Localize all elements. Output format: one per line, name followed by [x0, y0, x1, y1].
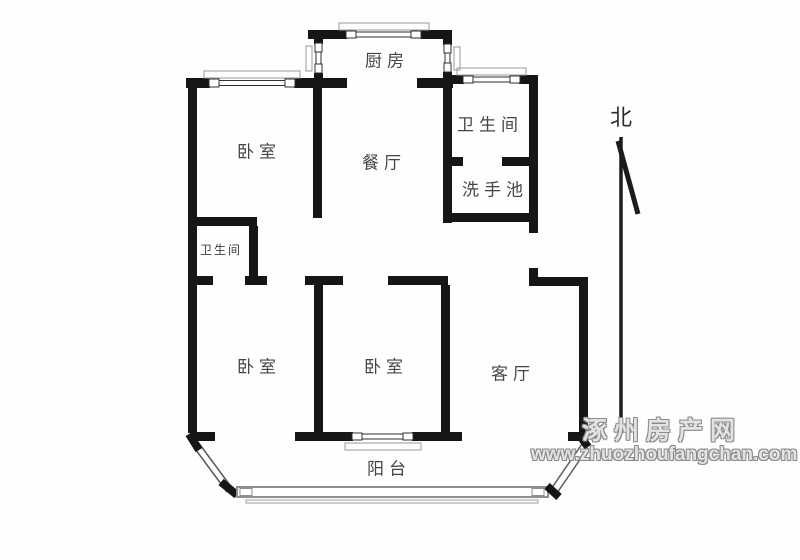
room-label-bedroom-top-left: 卧室 [237, 144, 281, 161]
watermark-site-url: www.zhuozhoufangchan.com [531, 445, 797, 464]
room-label-living-room: 客厅 [491, 366, 535, 383]
compass-north-label: 北 [610, 107, 632, 129]
window-bedroom-bottom [345, 432, 421, 450]
room-label-balcony: 阳台 [367, 461, 411, 478]
room-label-dining-room: 餐厅 [362, 155, 406, 172]
window-kitchen-left [306, 43, 323, 73]
room-label-bedroom-bottom-middle: 卧室 [364, 359, 408, 376]
window-bathroom-top [457, 68, 526, 84]
room-label-bedroom-bottom-left: 卧室 [237, 359, 281, 376]
north-arrow-icon [618, 137, 638, 420]
window-bedroom-top [204, 71, 300, 88]
room-label-bathroom: 卫生间 [457, 117, 523, 134]
room-label-bathroom-small: 卫生间 [200, 244, 242, 256]
window-kitchen-top [339, 23, 429, 39]
room-label-washbasin: 洗手池 [462, 182, 528, 199]
room-label-kitchen: 厨房 [365, 53, 409, 70]
floor-plan-image: 厨房 卧室 餐厅 卫生间 洗手池 卫生间 卧室 卧室 客厅 阳台 北 涿州房产网… [0, 0, 800, 560]
watermark-site-name: 涿州房产网 [582, 419, 742, 444]
